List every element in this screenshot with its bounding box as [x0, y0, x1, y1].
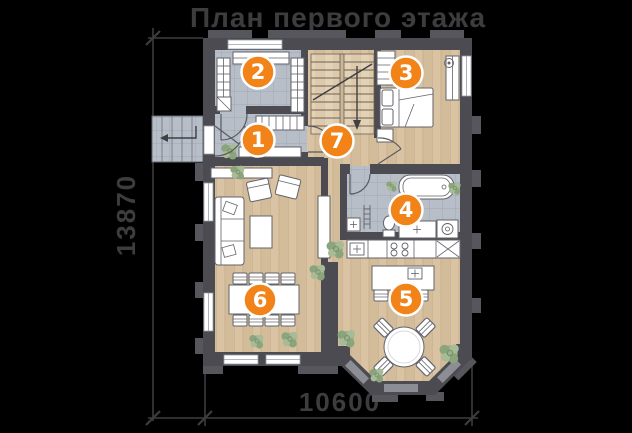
dining-chair: [265, 273, 279, 284]
bed: [380, 88, 433, 127]
room-marker-4-number: 4: [399, 198, 414, 222]
washing-machine: [437, 220, 458, 238]
room-marker-7-number: 7: [330, 129, 345, 153]
stair-stringer: [340, 54, 344, 134]
room-marker-5-number: 5: [399, 287, 414, 311]
entrance-door-opening: [204, 126, 214, 154]
dining-chair: [281, 273, 295, 284]
room-marker-7: 7: [321, 125, 354, 158]
coffee-table: [250, 216, 272, 248]
armchair: [246, 178, 272, 202]
pillow: [382, 90, 393, 106]
window-top-wardrobe: [228, 40, 282, 49]
hanger-rail-right: [291, 58, 304, 112]
dining-chair: [233, 273, 247, 284]
dining-chair: [281, 315, 295, 326]
dining-chair: [233, 315, 247, 326]
sofa: [215, 197, 244, 265]
dining-chair: [265, 315, 279, 326]
room-marker-6: 6: [244, 284, 277, 317]
room-marker-5: 5: [390, 283, 423, 316]
entrance-porch: [152, 116, 203, 162]
staircase: [311, 54, 374, 134]
room-marker-4: 4: [390, 194, 423, 227]
room-marker-2: 2: [242, 56, 275, 89]
room-marker-2-number: 2: [251, 60, 266, 84]
bathroom-small-sink: [347, 218, 360, 231]
height-dimension-label: 13870: [111, 174, 141, 256]
kitchen-counter: [347, 240, 460, 258]
floor-plan-drawing: План первого этажа 13870 10600: [0, 0, 632, 433]
room-marker-3-number: 3: [399, 61, 414, 85]
room-marker-6-number: 6: [253, 288, 268, 312]
window-living-bottom-2: [266, 355, 300, 364]
floor-plan-page: План первого этажа 13870 10600: [0, 0, 632, 433]
window-bay-bottom: [384, 384, 418, 392]
window-living-left-1: [204, 183, 213, 221]
wardrobe-cabinet: [217, 97, 231, 111]
pillow: [382, 109, 393, 125]
bar-stool: [374, 290, 388, 301]
room-marker-1: 1: [242, 124, 275, 157]
room-marker-3: 3: [390, 57, 423, 90]
window-bedroom-right: [462, 56, 471, 96]
window-living-bottom-1: [224, 355, 258, 364]
window-living-left-2: [204, 293, 213, 331]
page-title: План первого этажа: [190, 2, 486, 33]
porch-steps: [152, 116, 203, 162]
room-marker-1-number: 1: [251, 128, 266, 152]
